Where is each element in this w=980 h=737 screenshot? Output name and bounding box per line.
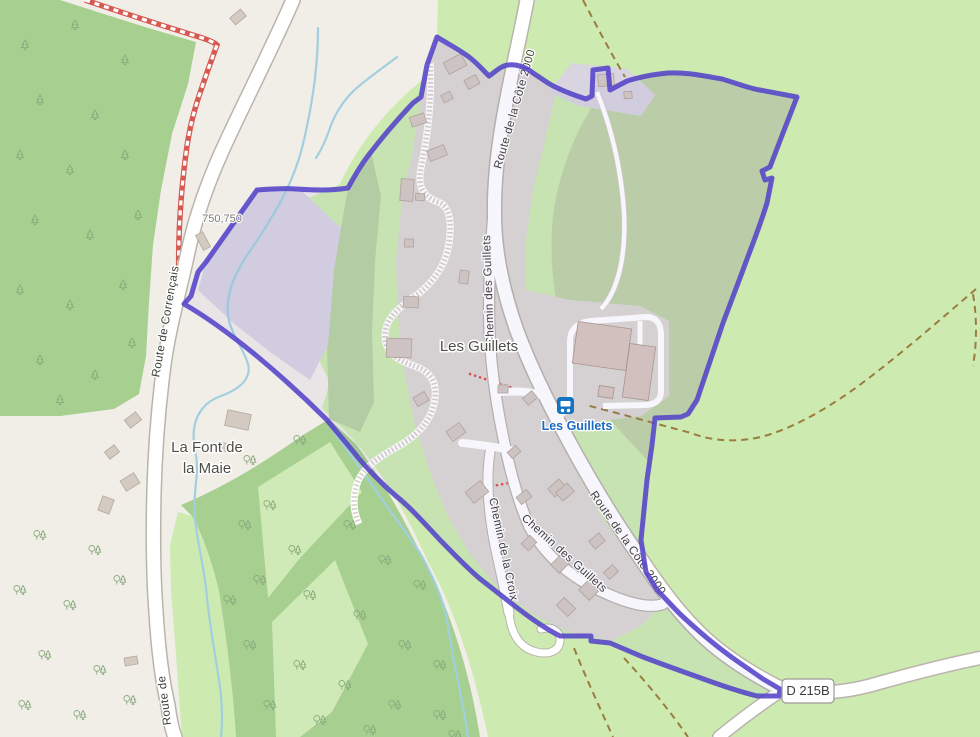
road-ref-badge-text: D 215B <box>786 683 829 698</box>
place-label-la-font-line2: la Maie <box>183 460 231 477</box>
bus-icon-windshield <box>561 401 571 407</box>
road-ref-badge: D 215B <box>782 679 834 703</box>
place-label-les-guillets: Les Guillets <box>440 338 518 355</box>
place-label-la-font-line1: La Font de <box>171 439 243 456</box>
bus-icon-wheel-left <box>561 409 564 412</box>
bus-icon-wheel-right <box>567 409 570 412</box>
map-frame: Route de la Côte 2000 Route de la Côte 2… <box>0 0 980 737</box>
map-canvas[interactable]: Route de la Côte 2000 Route de la Côte 2… <box>0 0 980 737</box>
parcel-number-label: 750,750 <box>202 213 242 225</box>
bus-stop-label: Les Guillets <box>542 419 613 433</box>
